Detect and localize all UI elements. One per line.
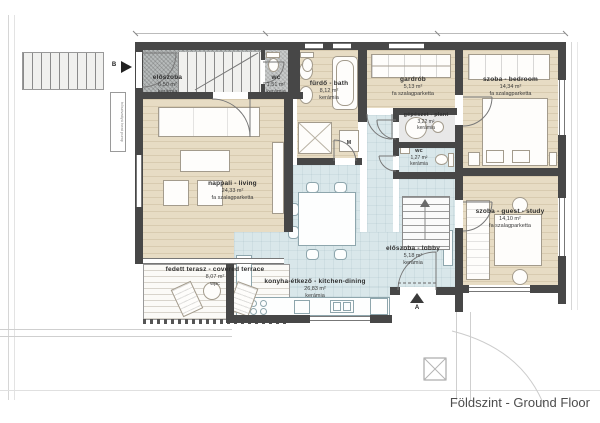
dining-chair xyxy=(306,182,319,193)
entrance-a-arrow xyxy=(410,293,424,303)
wall xyxy=(455,125,463,200)
wall xyxy=(436,287,455,295)
toilet-tank xyxy=(448,153,454,167)
window xyxy=(333,43,351,49)
paving-line xyxy=(577,42,578,310)
wall xyxy=(455,285,469,293)
exterior-stair xyxy=(22,52,104,90)
wall xyxy=(261,84,265,92)
window xyxy=(389,43,424,49)
walkway-line xyxy=(0,329,232,330)
hob-burner xyxy=(260,300,267,307)
kitchen-counter xyxy=(236,297,390,316)
wall xyxy=(558,256,566,304)
kitchen-sink-bowl xyxy=(333,302,341,311)
desk-chair xyxy=(512,197,528,213)
dining-chair xyxy=(334,182,347,193)
wardrobe xyxy=(468,54,550,80)
terrace-table xyxy=(203,282,221,300)
window xyxy=(310,316,370,321)
wall xyxy=(393,115,399,122)
interior-stair xyxy=(402,196,450,250)
site-boundary-line xyxy=(8,15,9,400)
wall xyxy=(393,142,455,148)
fridge xyxy=(370,298,388,315)
toilet-bowl xyxy=(268,58,279,72)
plan-title: Földszint - Ground Floor xyxy=(450,395,590,410)
dining-table xyxy=(298,192,356,246)
entrance-walk-line xyxy=(456,312,457,400)
wardrobe xyxy=(371,54,451,78)
dining-chair xyxy=(334,249,347,260)
coffee-table xyxy=(180,150,230,172)
paving-line xyxy=(571,42,572,310)
wall xyxy=(288,42,300,99)
pillow xyxy=(486,150,504,163)
nightstand xyxy=(549,152,557,166)
window xyxy=(469,287,530,292)
desk-chair xyxy=(512,269,528,285)
terrace-glass-door xyxy=(143,258,284,264)
wall xyxy=(558,42,566,80)
entrance-walk-line xyxy=(470,312,471,400)
wc1-door-gap xyxy=(261,60,265,84)
boiler-small xyxy=(432,121,444,133)
wall xyxy=(530,285,566,293)
wall xyxy=(558,135,566,198)
wall xyxy=(355,158,362,165)
marker-a-label: A xyxy=(412,305,422,311)
sofa xyxy=(158,107,260,137)
bathtub-basin xyxy=(336,60,354,106)
marker-b-label: B xyxy=(109,62,119,68)
entry-stair-treads xyxy=(178,52,262,92)
wall xyxy=(261,50,265,60)
sheet-divider-line xyxy=(0,390,600,391)
wall xyxy=(455,50,463,95)
wall xyxy=(390,287,400,295)
hob-burner xyxy=(260,308,267,315)
desk xyxy=(494,214,542,266)
armchair xyxy=(163,180,189,206)
oven xyxy=(294,300,310,314)
kitchen-sink-bowl xyxy=(343,302,351,311)
tv-unit xyxy=(272,142,284,214)
wall xyxy=(284,99,293,232)
window xyxy=(136,155,142,207)
boiler-tank xyxy=(405,117,427,139)
toilet-bowl xyxy=(302,58,313,72)
site-boundary-line xyxy=(14,15,15,400)
wall xyxy=(297,158,335,165)
stair-b-arrow xyxy=(121,61,132,73)
wall xyxy=(370,315,392,323)
armchair xyxy=(197,180,223,206)
wall xyxy=(358,50,367,122)
nightstand xyxy=(468,152,480,166)
floor-plan-sheet: hőszivattyú heat pump xyxy=(0,0,600,423)
window xyxy=(559,80,565,135)
washing-machine-label: M xyxy=(344,140,354,146)
wall xyxy=(226,262,234,323)
wall xyxy=(143,92,213,99)
wall xyxy=(226,315,310,323)
window xyxy=(305,43,323,49)
wall xyxy=(455,228,463,312)
entry-door-gap xyxy=(136,52,142,88)
window xyxy=(559,198,565,256)
wall xyxy=(393,148,399,156)
dimension-line xyxy=(135,33,565,34)
walkway-line xyxy=(0,336,232,337)
dining-chair xyxy=(306,249,319,260)
heat-pump-note: hőszivattyú heat pump xyxy=(110,92,126,152)
wall xyxy=(463,168,558,176)
toilet-bowl xyxy=(435,154,448,165)
wall xyxy=(393,108,457,115)
pillow xyxy=(512,150,530,163)
corridor-floor xyxy=(367,115,393,232)
wall xyxy=(393,172,455,179)
daybed xyxy=(466,200,490,280)
shower xyxy=(298,122,332,154)
